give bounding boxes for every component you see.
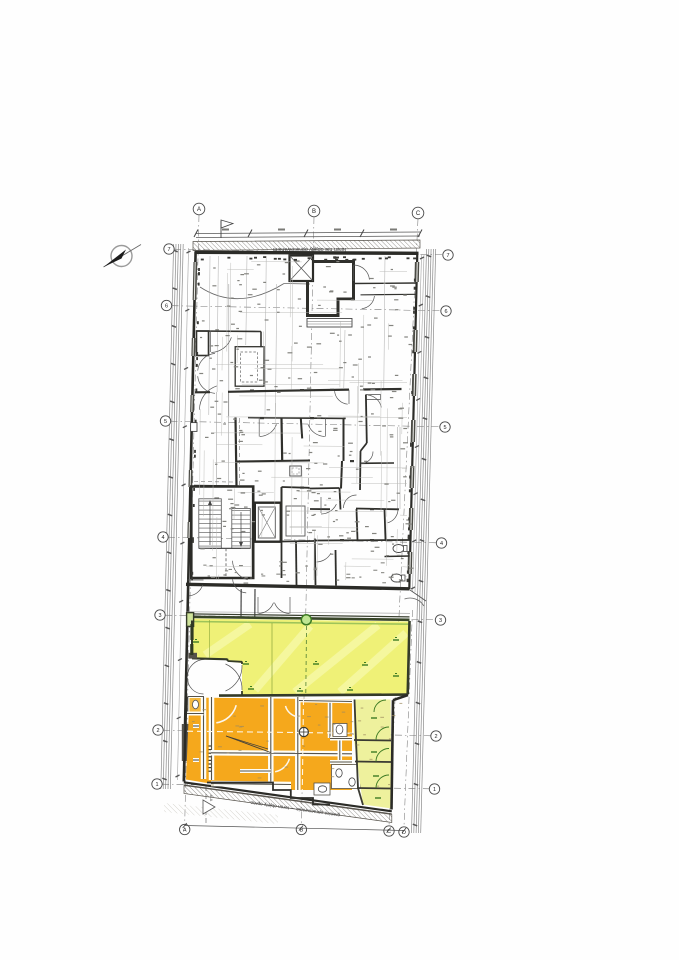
svg-text:5: 5 <box>164 419 167 425</box>
svg-text:A-A: A-A <box>209 795 214 802</box>
svg-text:C: C <box>416 211 421 217</box>
svg-text:4: 4 <box>440 541 443 547</box>
svg-text:2: 2 <box>156 728 159 734</box>
svg-text:7: 7 <box>446 253 449 259</box>
svg-text:A: A <box>183 828 187 834</box>
svg-text:4: 4 <box>161 535 164 541</box>
svg-text:6: 6 <box>165 304 168 310</box>
svg-text:1: 1 <box>433 787 436 793</box>
svg-text:7: 7 <box>167 247 170 253</box>
svg-text:3: 3 <box>439 618 442 624</box>
svg-text:6: 6 <box>444 309 447 315</box>
svg-text:3: 3 <box>158 613 161 619</box>
svg-text:2: 2 <box>434 734 437 740</box>
svg-text:5: 5 <box>443 425 446 431</box>
svg-text:A: A <box>197 207 201 213</box>
svg-text:B: B <box>312 209 316 215</box>
svg-text:1: 1 <box>155 782 158 788</box>
